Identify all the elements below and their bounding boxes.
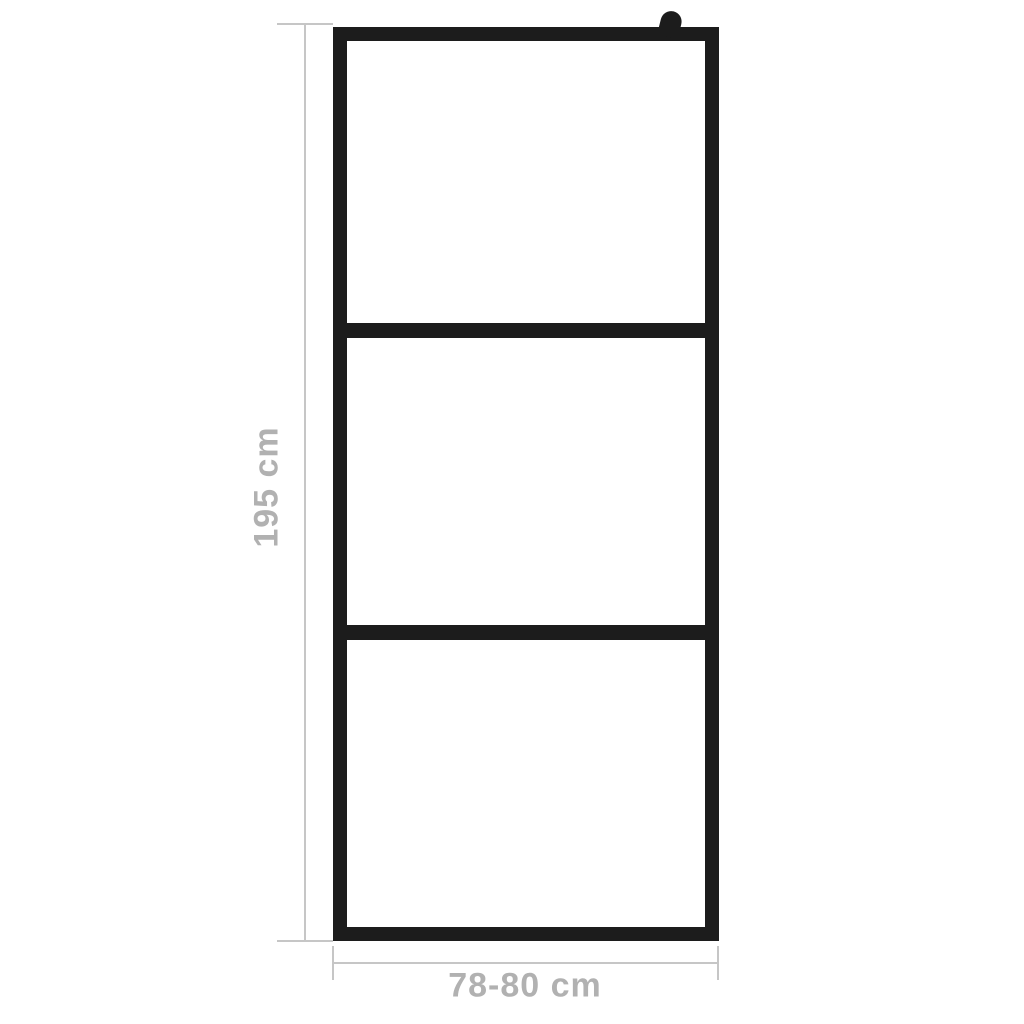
width-dimension-tick-left [332,946,334,980]
frame-crossbar-upper [346,323,706,338]
width-dimension-tick-right [717,946,719,980]
height-dimension-label: 195 cm [248,426,287,547]
width-dimension-line [333,962,719,964]
height-dimension-cap-top [277,23,333,25]
width-dimension-label: 78-80 cm [448,967,602,1006]
height-dimension-line [304,24,306,941]
product-dimension-diagram: 195 cm 78-80 cm [0,0,1024,1024]
shower-screen-frame [333,27,719,941]
height-dimension-cap-bottom [277,940,333,942]
frame-crossbar-lower [346,625,706,640]
